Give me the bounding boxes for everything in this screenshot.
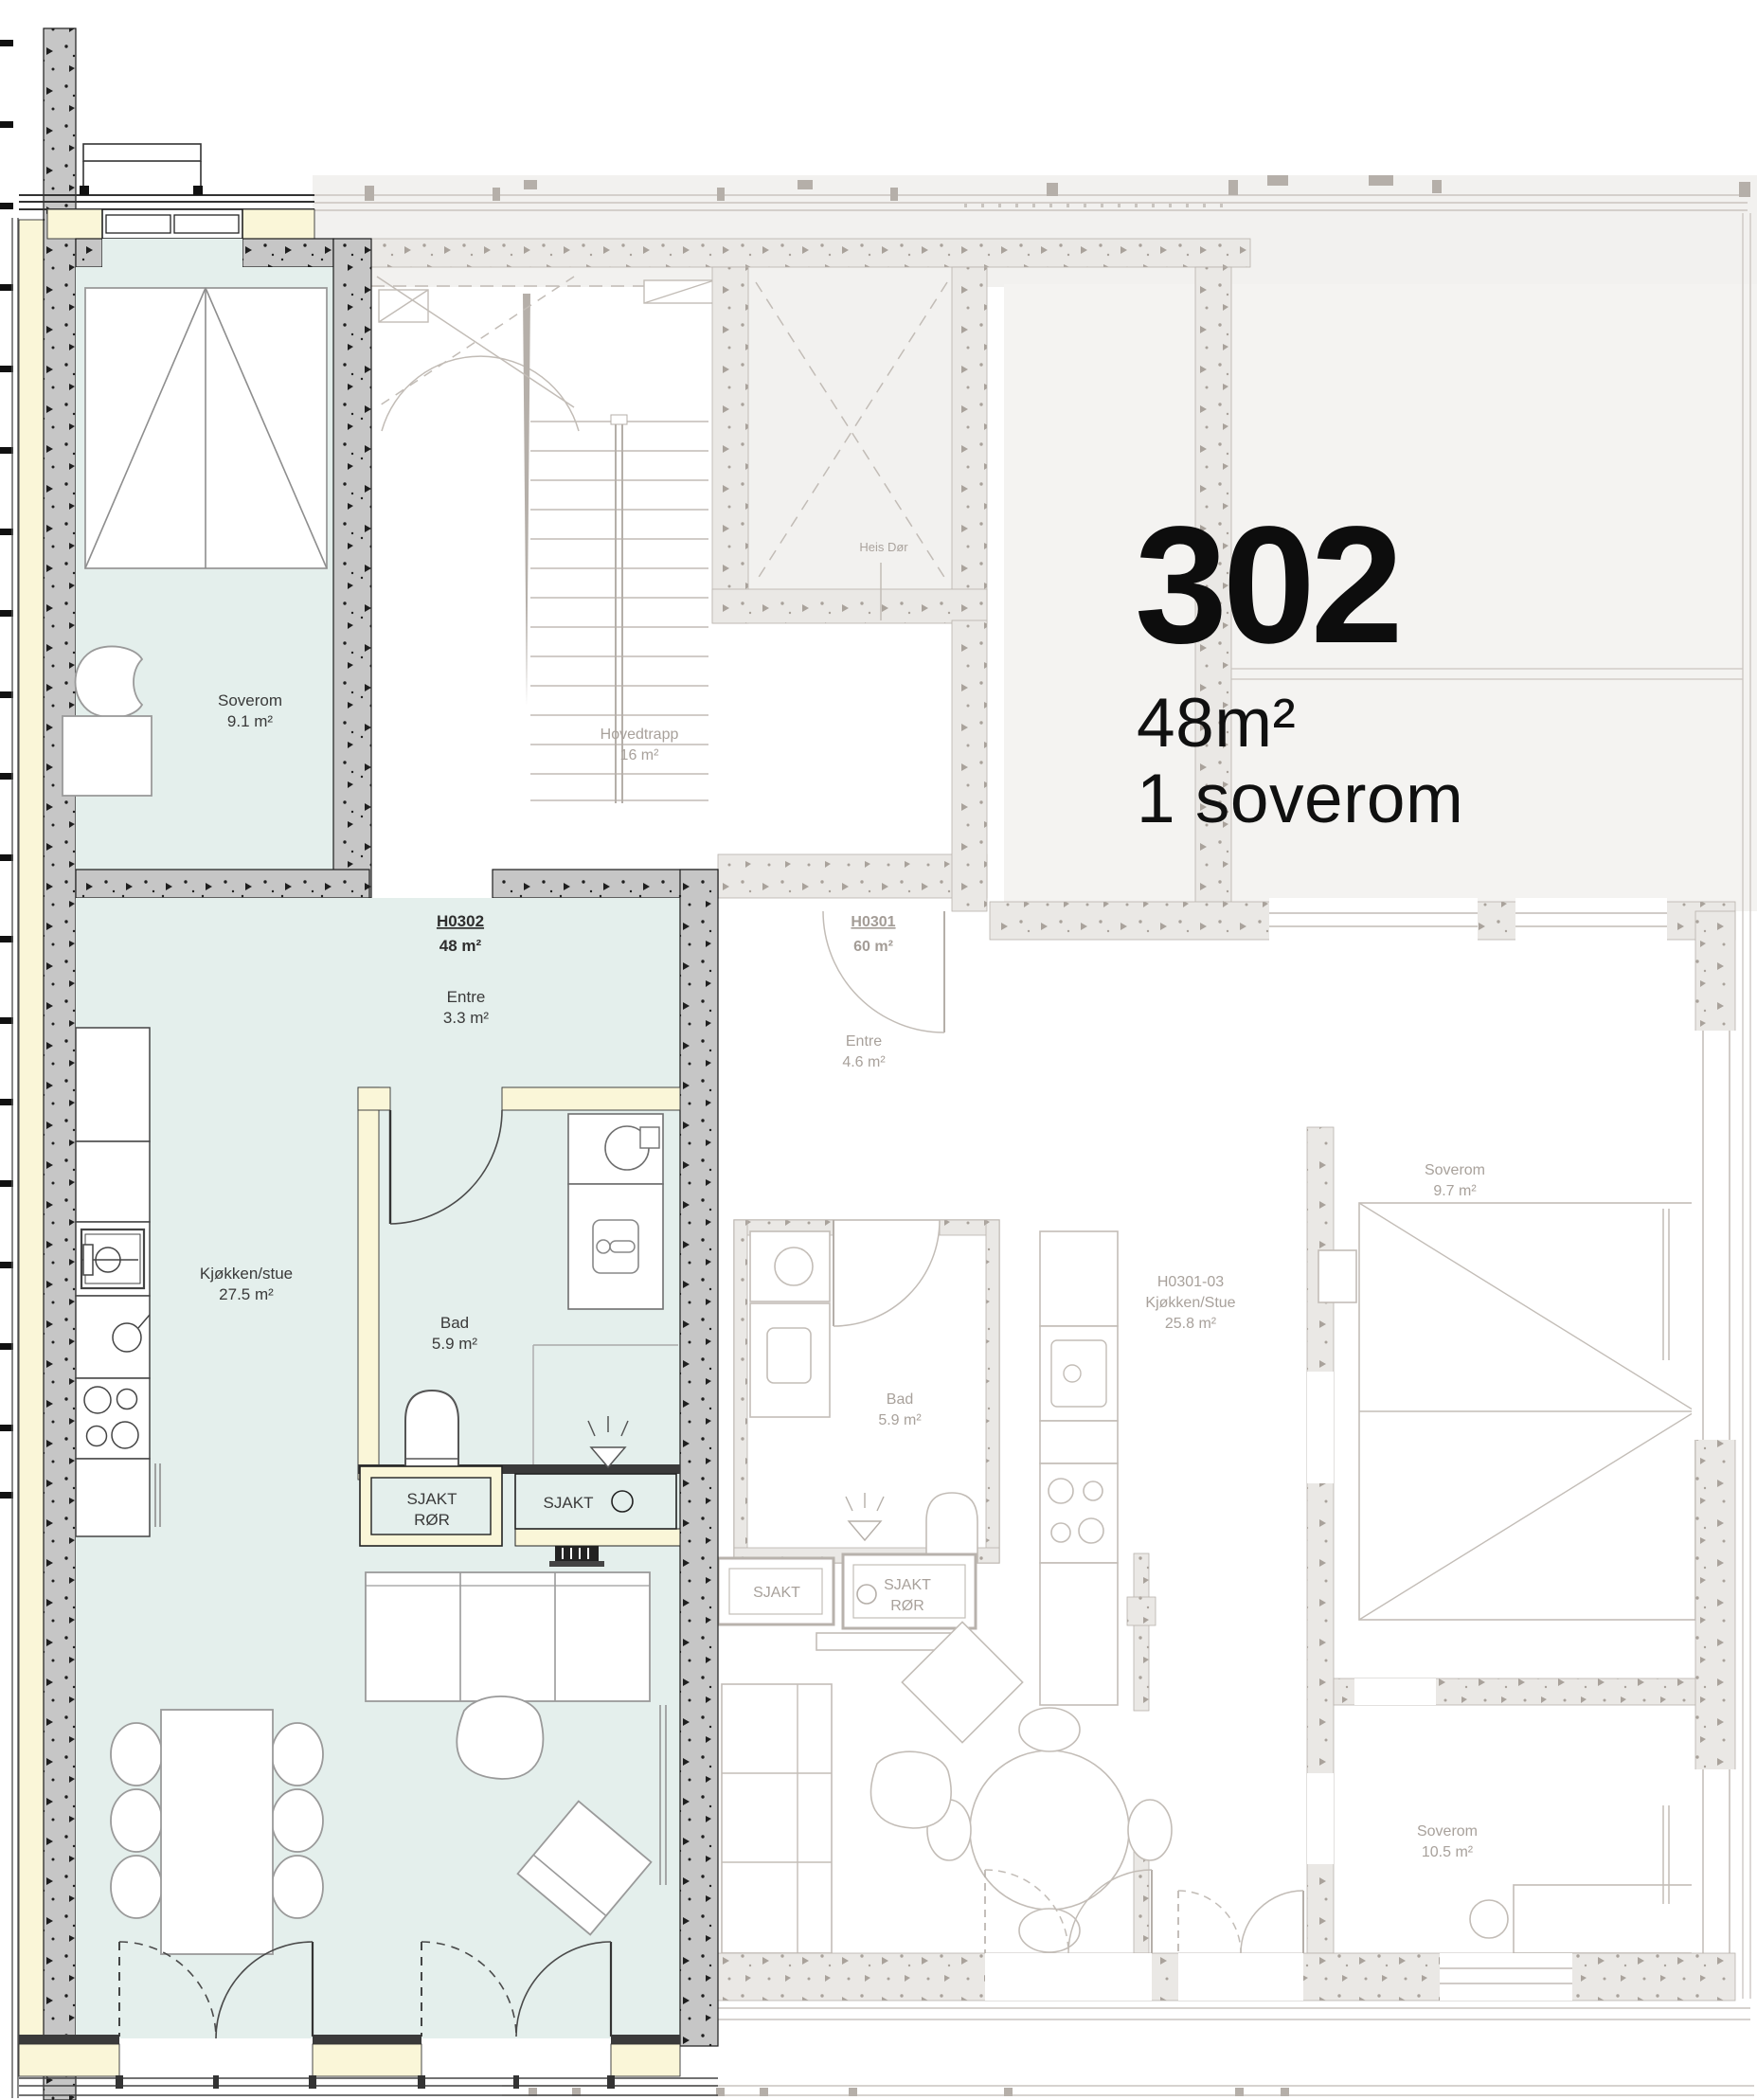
- heis-dor-label: Heis Dør: [859, 540, 908, 554]
- h0301-kjokken-line2: Kjøkken/Stue: [1145, 1295, 1235, 1311]
- lounge-chair-302: [457, 1696, 543, 1779]
- stair-treads: [530, 422, 708, 800]
- h0301-code-area: 60 m²: [853, 939, 893, 955]
- entre-302-label: Entre: [447, 988, 486, 1006]
- desk-icon: [63, 716, 152, 796]
- h0301-top-windows: [1269, 898, 1667, 943]
- kitchen-units: [76, 1028, 160, 1536]
- entre-302-area: 3.3 m²: [443, 1009, 490, 1027]
- faded-top-wall: [371, 239, 1250, 267]
- faded-wall-below-stair: [718, 854, 987, 898]
- h0301-entre-label: Entre: [846, 1033, 882, 1050]
- sjakt-ror-302-line2: RØR: [414, 1511, 450, 1529]
- hovedtrapp-area: 16 m²: [620, 747, 660, 763]
- sjakt-302-label: SJAKT: [544, 1494, 594, 1512]
- party-wall: [680, 870, 718, 2046]
- faded-wall-lift-to-h0301: [952, 620, 987, 911]
- h0301-bench: [816, 1633, 955, 1650]
- kjokken-302-label: Kjøkken/stue: [200, 1265, 293, 1283]
- soverom-302-label: Soverom: [218, 691, 282, 709]
- unit-bedrooms: 1 soverom: [1137, 761, 1463, 837]
- h0301-kjokken-line1: H0301-03: [1157, 1274, 1224, 1290]
- h0301-bed2-icon: [1514, 1885, 1697, 1953]
- stair-section-needle: [523, 294, 530, 706]
- h0301-stove-icon: [1040, 1463, 1118, 1563]
- mullion-ticks: [116, 2075, 615, 2089]
- h0301-lounge-chair: [871, 1751, 952, 1828]
- h0301-entre-area: 4.6 m²: [842, 1054, 886, 1070]
- h0301-sofa: [722, 1684, 832, 1953]
- h0301-bad-label: Bad: [887, 1391, 913, 1408]
- h0301-soverom-2: Soverom 10.5 m²: [1417, 1823, 1697, 1953]
- h0301-sjakt-ror-line1: SJAKT: [884, 1577, 931, 1593]
- soverom-302-area: 9.1 m²: [227, 712, 274, 730]
- apartment-302[interactable]: Soverom 9.1 m² H0302 48 m² Entre 3.3 m² …: [0, 28, 718, 2100]
- hovedtrapp-label: Hovedtrapp: [601, 727, 679, 743]
- h0301-soverom2-label: Soverom: [1417, 1823, 1478, 1840]
- h0301-bad-area: 5.9 m²: [878, 1412, 922, 1428]
- stair-winder-arc: [382, 356, 579, 431]
- toilet-icon: [405, 1391, 458, 1468]
- kjokken-302-area: 27.5 m²: [219, 1285, 274, 1303]
- bad-302-label: Bad: [440, 1314, 469, 1332]
- left-exterior-wall: [0, 28, 76, 2100]
- kitchen-faucet-icon: [113, 1323, 141, 1352]
- bad-302-area: 5.9 m²: [432, 1335, 478, 1353]
- h0301-soverom2-area: 10.5 m²: [1422, 1844, 1474, 1860]
- sjakt-ror-302-line1: SJAKT: [407, 1490, 457, 1508]
- h0301-sjakt: SJAKT SJAKT RØR: [718, 1554, 976, 1650]
- h0301-soverom1-area: 9.7 m²: [1433, 1183, 1477, 1199]
- desk-chair-icon: [76, 646, 143, 717]
- left-wall-ticks: [0, 40, 13, 1499]
- h0301-soverom-1: Soverom 9.7 m²: [1318, 1162, 1695, 1620]
- h0301-soverom1-label: Soverom: [1425, 1162, 1485, 1178]
- h0301-round-table: [970, 1750, 1129, 1910]
- dining-set: [111, 1710, 323, 1954]
- h0301-kjokken-line3: 25.8 m²: [1165, 1316, 1217, 1332]
- floor-plan-page: Hovedtrapp 16 m² Heis Dør: [0, 0, 1757, 2100]
- h0301-bathroom: Bad 5.9 m²: [734, 1220, 999, 1563]
- h0301-code: H0301: [851, 914, 895, 930]
- vent-grille-icon: [549, 1546, 604, 1567]
- h0301-sjakt-label: SJAKT: [753, 1585, 800, 1601]
- sideboard: [366, 1572, 650, 1701]
- room-soverom-302: Soverom 9.1 m²: [63, 239, 371, 898]
- h0302-code-area: 48 m²: [439, 937, 482, 955]
- floor-plan-drawing: Hovedtrapp 16 m² Heis Dør: [0, 0, 1757, 2100]
- vanity-icon: [568, 1184, 663, 1309]
- h0302-code: H0302: [437, 912, 484, 930]
- unit-number: 302: [1135, 493, 1399, 678]
- dining-table: [161, 1710, 273, 1954]
- h0301-sjakt-ror-line2: RØR: [890, 1598, 924, 1614]
- h0301-toilet-icon: [926, 1493, 977, 1563]
- unit-size: 48m²: [1137, 685, 1296, 762]
- bedroom-stair-wall: [333, 239, 371, 898]
